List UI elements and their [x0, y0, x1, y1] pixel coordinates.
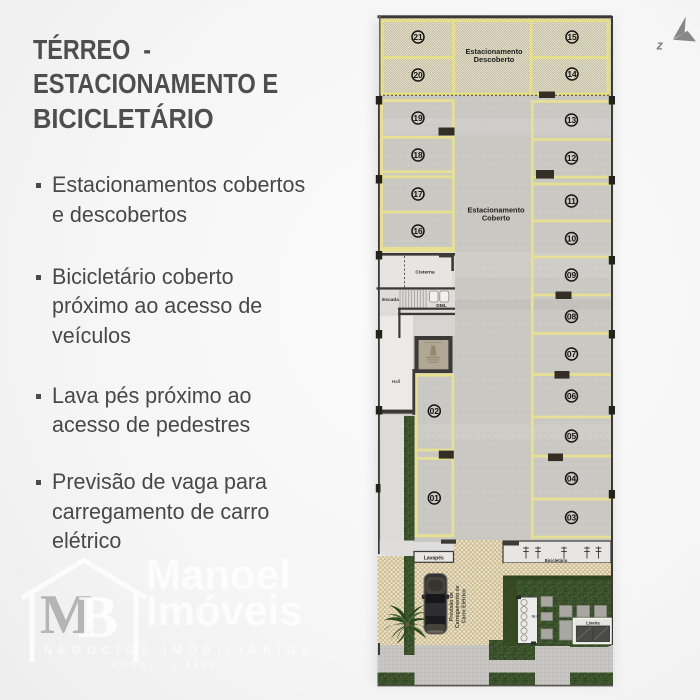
svg-text:Lixeira: Lixeira	[586, 620, 600, 625]
svg-text:05: 05	[567, 431, 577, 441]
svg-text:14: 14	[567, 69, 577, 79]
svg-text:GLP: GLP	[532, 615, 540, 619]
svg-text:16: 16	[413, 226, 423, 236]
svg-text:B: B	[78, 584, 118, 650]
svg-text:04: 04	[567, 474, 577, 484]
svg-text:21: 21	[413, 32, 423, 42]
svg-text:07: 07	[567, 349, 577, 359]
svg-text:03: 03	[567, 513, 577, 523]
svg-text:20: 20	[413, 70, 423, 80]
svg-text:Hall: Hall	[392, 379, 400, 384]
svg-text:CRECI - J 5410: CRECI - J 5410	[112, 660, 218, 670]
svg-text:Cisterna: Cisterna	[415, 270, 435, 276]
svg-text:18: 18	[413, 150, 423, 160]
svg-text:08: 08	[567, 312, 577, 322]
svg-text:Descoberto: Descoberto	[474, 55, 515, 64]
svg-text:11: 11	[567, 196, 576, 206]
svg-text:Imóveis: Imóveis	[146, 587, 302, 634]
svg-text:01: 01	[430, 493, 440, 503]
svg-text:NEGÓCIOS IMOBILIÁRIOS: NEGÓCIOS IMOBILIÁRIOS	[44, 644, 315, 657]
svg-text:06: 06	[567, 391, 577, 401]
svg-text:10: 10	[567, 234, 577, 244]
svg-text:02: 02	[430, 406, 440, 416]
svg-text:Lavapés: Lavapés	[424, 555, 444, 561]
svg-text:z: z	[656, 38, 664, 53]
svg-text:Bicicletário: Bicicletário	[545, 558, 568, 563]
svg-text:19: 19	[413, 113, 423, 123]
svg-text:13: 13	[567, 115, 577, 125]
svg-text:Escada: Escada	[382, 297, 399, 303]
svg-text:09: 09	[567, 270, 577, 280]
svg-text:17: 17	[413, 189, 423, 199]
svg-text:Coberto: Coberto	[482, 213, 511, 222]
svg-text:15: 15	[567, 32, 577, 42]
svg-text:12: 12	[567, 153, 577, 163]
